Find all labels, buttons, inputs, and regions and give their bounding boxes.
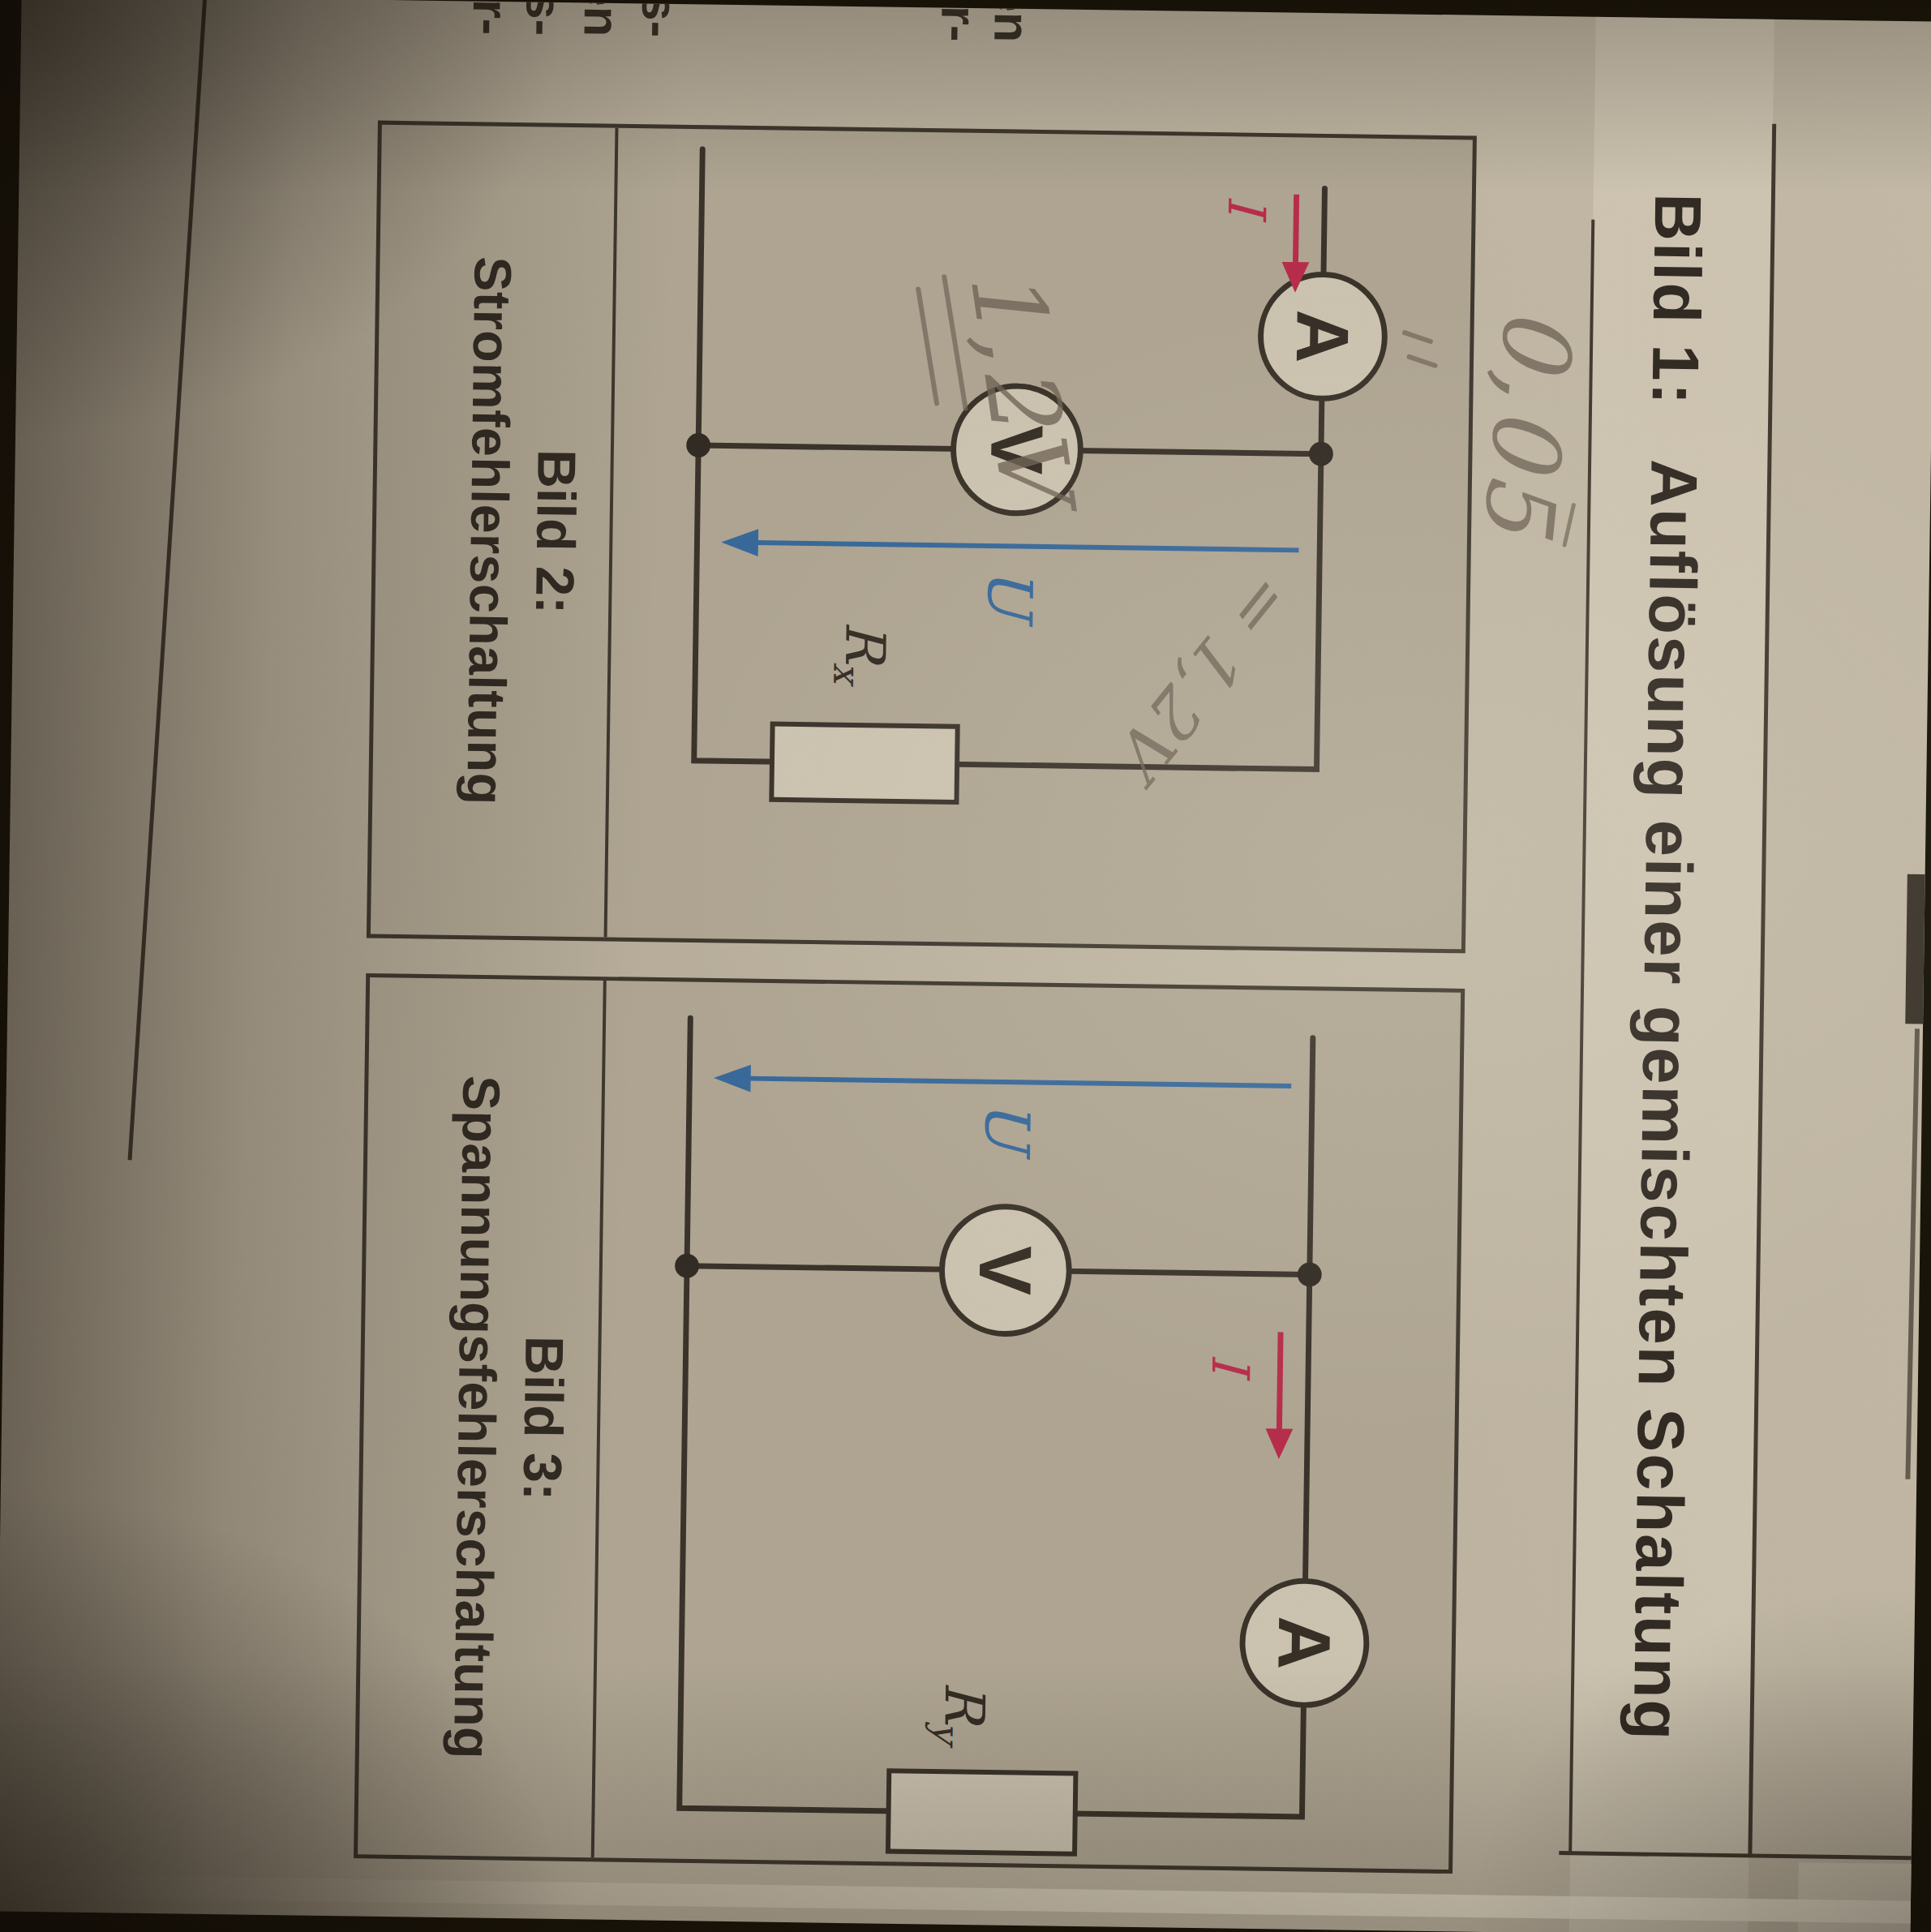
resistor-ry [887, 1771, 1075, 1853]
current-label: I [1200, 1353, 1260, 1374]
voltage-arrow-icon [749, 1078, 1291, 1085]
ammeter-label: A [1261, 1594, 1347, 1691]
current-arrow-icon [1295, 194, 1296, 263]
book-page: Bild 1:Auflösung einer gemischten Schalt… [0, 0, 1931, 1932]
current-arrow-icon [1279, 1332, 1281, 1430]
voltmeter-label: V [962, 1221, 1048, 1318]
current-label: I [1217, 195, 1277, 216]
ammeter-label: A [1279, 287, 1365, 384]
voltage-arrow-icon [756, 543, 1298, 550]
voltage-label: U [971, 1099, 1043, 1152]
photo-frame: Bild 1:Auflösung einer gemischten Schalt… [0, 0, 1931, 1932]
resistor-rx [771, 723, 957, 801]
junction-dot [686, 432, 710, 457]
resistor-label: Rx [825, 620, 897, 684]
resistor-label: Ry [924, 1681, 996, 1744]
voltage-label: U [973, 566, 1045, 619]
voltage-arrowhead-icon [721, 528, 758, 556]
voltage-arrowhead-icon [713, 1064, 750, 1092]
junction-dot [1297, 1262, 1321, 1286]
junction-dot [674, 1253, 698, 1277]
current-arrowhead-icon [1265, 1428, 1293, 1459]
junction-dot [1308, 441, 1332, 466]
